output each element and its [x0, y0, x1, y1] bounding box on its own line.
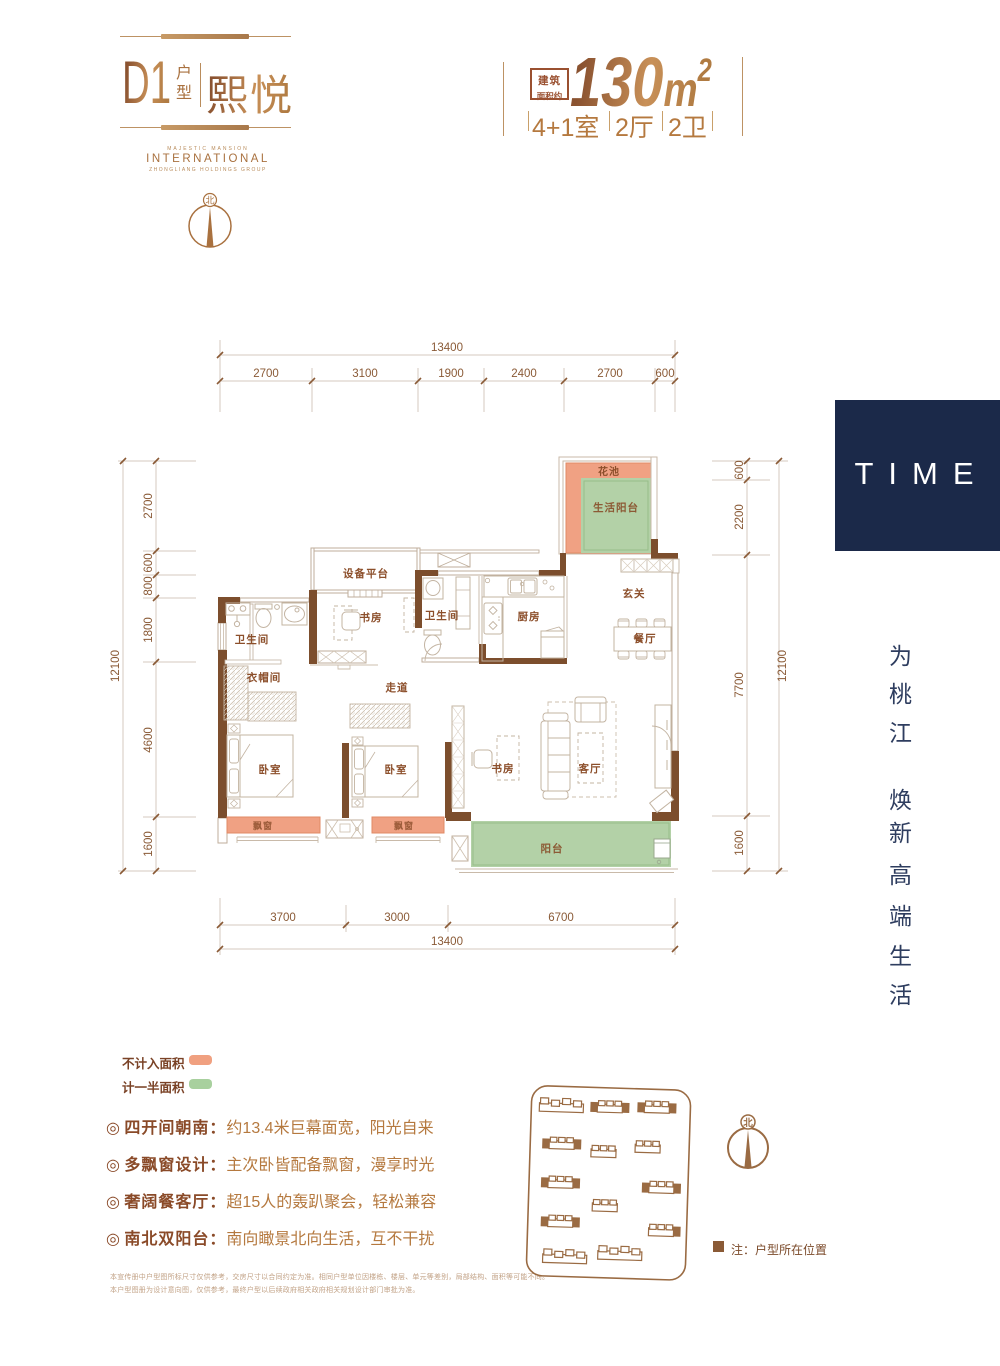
svg-text:1900: 1900 [438, 368, 464, 380]
svg-text:衣帽间: 衣帽间 [247, 671, 282, 684]
svg-text:北: 北 [743, 1117, 753, 1129]
svg-text:600: 600 [143, 553, 155, 572]
svg-text:卧室: 卧室 [259, 763, 282, 776]
svg-text:书房: 书房 [492, 762, 515, 775]
svg-text:12100: 12100 [110, 650, 122, 682]
svg-text:600: 600 [734, 460, 746, 479]
svg-text:卫生间: 卫生间 [235, 633, 270, 646]
svg-text:生活阳台: 生活阳台 [593, 501, 639, 514]
svg-text:1600: 1600 [143, 831, 155, 857]
svg-text:花池: 花池 [598, 465, 620, 478]
svg-text:13400: 13400 [431, 342, 463, 354]
svg-text:4600: 4600 [143, 727, 155, 753]
svg-text:走道: 走道 [385, 681, 409, 694]
svg-text:卧室: 卧室 [385, 763, 408, 776]
svg-text:飘窗: 飘窗 [394, 820, 414, 831]
svg-text:厨房: 厨房 [518, 610, 541, 623]
svg-text:书房: 书房 [360, 611, 383, 624]
svg-text:12100: 12100 [777, 650, 789, 682]
svg-text:1800: 1800 [143, 617, 155, 643]
svg-text:800: 800 [143, 576, 155, 595]
svg-text:3000: 3000 [384, 912, 410, 924]
svg-text:3700: 3700 [270, 912, 296, 924]
svg-text:阳台: 阳台 [541, 842, 564, 855]
svg-text:2400: 2400 [511, 368, 537, 380]
svg-text:3100: 3100 [352, 368, 378, 380]
svg-text:7700: 7700 [734, 672, 746, 698]
svg-text:客厅: 客厅 [578, 762, 602, 775]
svg-text:北: 北 [205, 196, 214, 206]
svg-text:13400: 13400 [431, 936, 463, 948]
svg-text:600: 600 [655, 368, 674, 380]
svg-text:2700: 2700 [597, 368, 623, 380]
svg-text:2700: 2700 [253, 368, 279, 380]
svg-text:卫生间: 卫生间 [425, 609, 460, 622]
svg-text:餐厅: 餐厅 [633, 632, 657, 645]
svg-text:1600: 1600 [734, 830, 746, 856]
svg-text:设备平台: 设备平台 [343, 567, 389, 580]
svg-text:飘窗: 飘窗 [253, 820, 273, 831]
svg-text:玄关: 玄关 [623, 587, 646, 600]
svg-text:2700: 2700 [143, 493, 155, 519]
svg-text:6700: 6700 [548, 912, 574, 924]
svg-text:2200: 2200 [734, 504, 746, 530]
